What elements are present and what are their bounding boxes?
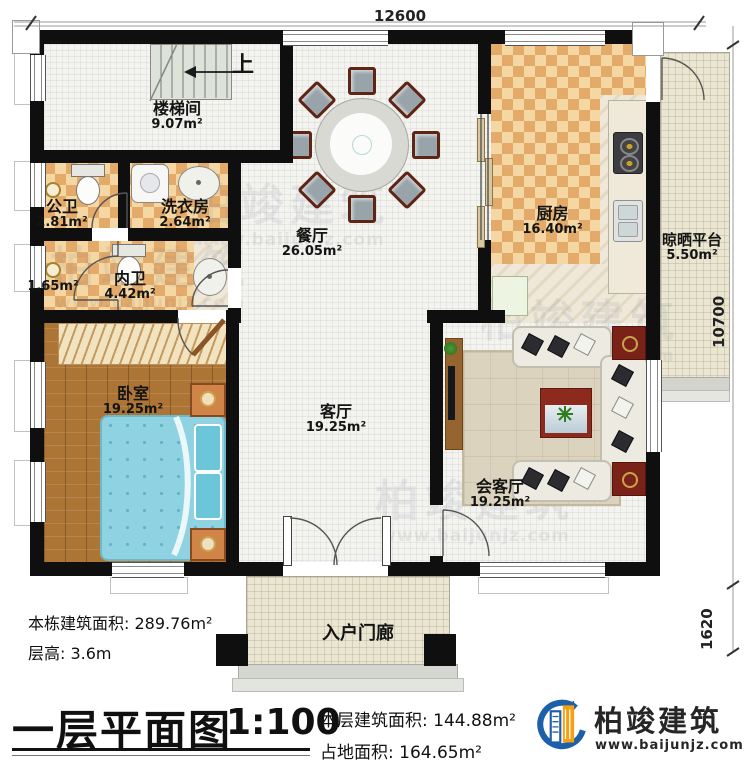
light-fixture-icon — [45, 262, 61, 278]
dining-chair — [348, 195, 376, 223]
window-sill — [14, 244, 31, 292]
entry-door-leaf — [382, 516, 391, 566]
window-sill — [110, 577, 188, 594]
porch-pillar — [424, 634, 456, 666]
building-total-area: 本栋建筑面积: 289.76m² — [28, 610, 212, 634]
doorway — [92, 228, 128, 241]
pillow — [194, 424, 222, 472]
nightstand — [190, 383, 226, 417]
wall-living-reception — [430, 310, 443, 505]
plant-icon — [444, 342, 457, 355]
window-sill — [478, 577, 609, 594]
wall-stairwell-right — [280, 30, 293, 163]
doorway — [178, 310, 226, 323]
stove — [613, 132, 643, 174]
dining-chair — [412, 131, 440, 159]
dim-right-lower: 1620 — [698, 594, 716, 650]
corner-marker — [12, 20, 40, 54]
lamp-icon — [200, 391, 216, 407]
platform-edge-band — [660, 377, 730, 391]
wardrobe — [58, 323, 230, 365]
coffee-table-glass — [545, 405, 587, 433]
footprint-area: 占地面积: 164.65m² — [320, 738, 482, 763]
title-underline — [12, 748, 310, 751]
wall-corner-piece — [226, 310, 241, 323]
corner-marker — [632, 22, 664, 56]
brand-url: www.baijunjz.com — [595, 738, 744, 753]
window — [505, 30, 605, 46]
sofa-cushion — [547, 335, 570, 358]
window-sill — [14, 53, 31, 105]
laundry-sink-drain — [196, 180, 201, 185]
nightstand — [190, 528, 226, 561]
floor-height: 层高: 3.6m — [28, 640, 112, 664]
wall-bath-mid — [44, 228, 92, 241]
sliding-door-panel — [485, 158, 493, 206]
brand-logo: 柏竣建筑 www.baijunjz.com — [536, 694, 736, 760]
brand-logo-icon — [536, 696, 588, 756]
kitchen-counter — [608, 100, 648, 294]
wall-kitchen-left — [478, 30, 491, 114]
window-sill — [14, 460, 31, 526]
sofa-cushion — [547, 469, 570, 492]
coffee-table — [540, 388, 592, 438]
wall-bath-mid — [128, 228, 228, 241]
end-table — [612, 462, 646, 496]
burner-icon — [620, 138, 639, 155]
porch-step-2 — [232, 678, 464, 692]
window — [30, 362, 46, 428]
sofa-cushion — [611, 430, 634, 453]
burner-icon — [620, 155, 639, 172]
pillow — [194, 472, 222, 520]
sofa-cushion — [573, 467, 596, 490]
toilet-bowl — [117, 256, 141, 285]
wall-bath-right — [228, 163, 241, 268]
doorway — [228, 268, 241, 308]
ensuite-sink-drain — [207, 274, 212, 279]
wall-outer-right — [646, 30, 660, 576]
sofa-cushion — [611, 364, 634, 387]
floorplan-canvas: 柏竣建筑 www.baijunjz.com 柏竣建筑 www.baijunjz.… — [0, 0, 750, 768]
dim-top: 12600 — [358, 7, 442, 25]
staircase — [150, 44, 232, 100]
wall-bedroom-right — [226, 323, 239, 576]
end-table — [612, 326, 646, 360]
window-sill — [14, 161, 31, 211]
window — [30, 163, 46, 207]
sofa-cushion — [521, 333, 544, 356]
sofa-cushion — [573, 333, 596, 356]
wall-bath-divider — [118, 163, 130, 228]
light-fixture-icon — [45, 182, 61, 198]
entry-door-leaf — [283, 516, 292, 566]
sink-basin — [618, 222, 638, 237]
wall-stairwell-bottom — [44, 150, 293, 163]
sofa-cushion — [521, 467, 544, 490]
brand-name: 柏竣建筑 — [594, 698, 722, 740]
dim-right-upper: 10700 — [710, 278, 728, 348]
window — [480, 562, 605, 578]
window-sill — [14, 360, 31, 432]
sofa — [512, 460, 612, 502]
sliding-door-panel — [477, 206, 485, 248]
doorway-entry — [283, 562, 388, 576]
sofa-chaise — [600, 355, 648, 471]
window — [283, 30, 388, 46]
this-floor-area: 本层建筑面积: 144.88m² — [320, 706, 516, 731]
sofa — [512, 326, 612, 368]
wall-bath-bottom — [44, 310, 178, 323]
lamp-icon — [200, 536, 216, 552]
window — [30, 55, 46, 101]
sofa-cushion — [611, 396, 634, 419]
toilet-bowl — [76, 176, 100, 205]
dining-table-center — [352, 135, 372, 155]
sliding-door-panel — [477, 118, 485, 162]
lamp-icon — [622, 472, 638, 488]
porch-pillar — [216, 634, 248, 666]
wall-living-reception-stub — [430, 556, 443, 576]
sink-basin — [618, 205, 638, 220]
platform-edge-band-2 — [660, 390, 730, 402]
lamp-icon — [622, 336, 638, 352]
window — [646, 360, 662, 452]
window — [112, 562, 184, 578]
doorway — [646, 56, 660, 102]
window — [30, 246, 46, 288]
title-underline-2 — [12, 755, 310, 756]
tv-icon — [448, 366, 455, 420]
window — [30, 462, 46, 522]
kitchen-sink — [613, 200, 643, 242]
dining-chair — [348, 67, 376, 95]
porch-step-1 — [238, 664, 458, 679]
floor-entry-porch — [246, 576, 450, 666]
washing-machine-lid — [140, 173, 160, 193]
